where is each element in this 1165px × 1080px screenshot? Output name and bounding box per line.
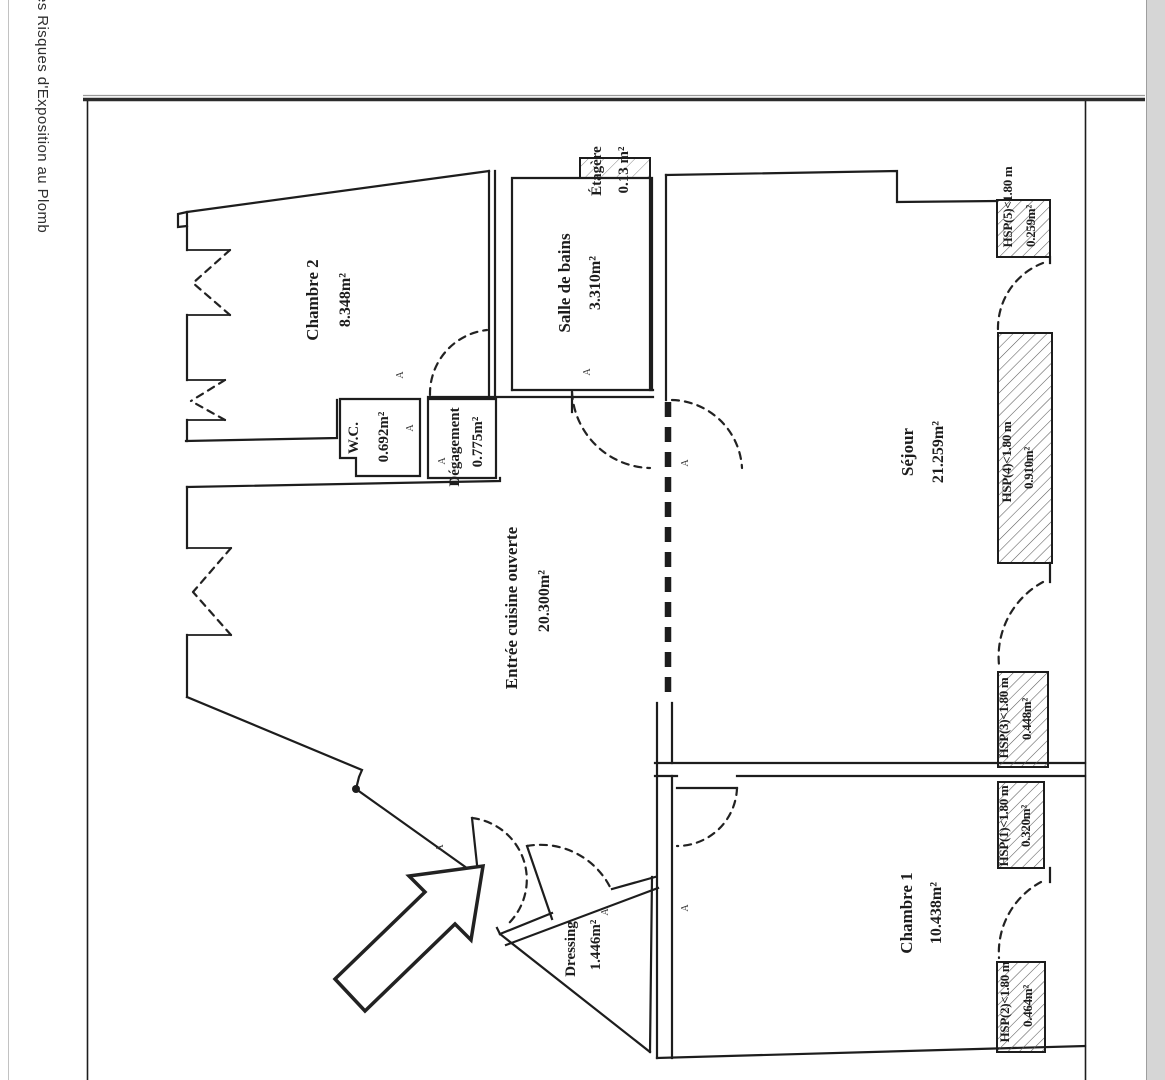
- door-arc-chambre1: [677, 788, 737, 846]
- label-hsp2: HSP(2)<1.80 m: [997, 961, 1012, 1042]
- label-wc-area: 0.692m²: [376, 411, 392, 462]
- a-marker: A: [680, 904, 691, 912]
- label-chambre2-name: Chambre 2: [303, 259, 322, 340]
- a-marker: A: [405, 424, 416, 432]
- door-leaf-dressing: [527, 846, 552, 919]
- label-hsp2-area: 0.464m²: [1020, 985, 1035, 1027]
- label-etagere-area: 0.13 m²: [616, 146, 632, 193]
- label-chambre1-area: 10.438m²: [928, 882, 945, 944]
- label-degagement-area: 0.775m²: [470, 416, 486, 467]
- label-hsp3: HSP(3)<1.80 m: [996, 677, 1011, 758]
- label-sdb-name: Salle de bains: [555, 233, 574, 333]
- survey-markers: A A A A A A A A: [395, 368, 691, 916]
- window-ticks: [187, 250, 231, 635]
- document-page: es Risques d'Exposition au Plomb: [0, 0, 1165, 1080]
- window-arc-ch2-2: [191, 380, 225, 420]
- label-degagement-name: Dégagement: [447, 407, 463, 486]
- label-hsp4: HSP(4)<1.80 m: [999, 421, 1014, 502]
- window-arc-chambre1: [999, 882, 1041, 958]
- floor-plan: Chambre 2 8.348m² W.C. 0.692m² Dégagemen…: [0, 0, 1165, 1080]
- door-arc-sdb: [572, 392, 650, 468]
- label-hsp1: HSP(1)<1.80 m: [996, 785, 1011, 866]
- wall-chambre2-top: [178, 171, 489, 227]
- label-sejour-name: Séjour: [898, 427, 917, 476]
- a-marker: A: [437, 457, 448, 465]
- door-arc-balcony: [999, 582, 1043, 665]
- door-arc-sejour: [672, 400, 742, 468]
- wall-salle-de-bains: [512, 178, 652, 390]
- a-marker: A: [680, 459, 691, 467]
- window-arc-entree: [193, 548, 231, 635]
- wall-chambre2-right: [489, 171, 495, 398]
- label-dressing-area: 1.446m²: [588, 919, 604, 970]
- entrance-arrow: [335, 866, 483, 1011]
- room-labels: Chambre 2 8.348m² W.C. 0.692m² Dégagemen…: [303, 146, 947, 977]
- door-swings: [191, 250, 1043, 958]
- plan-frame: [83, 96, 1145, 1080]
- a-marker: A: [600, 908, 611, 916]
- label-sejour-area: 21.259m²: [930, 421, 947, 483]
- hsp-labels: HSP(5)<1.80 m 0.259m² HSP(4)<1.80 m 0.91…: [996, 166, 1038, 1042]
- label-sdb-area: 3.310m²: [587, 256, 604, 310]
- label-chambre2-area: 8.348m²: [337, 273, 354, 327]
- window-arc-ch2-1: [193, 250, 230, 315]
- a-marker: A: [395, 371, 406, 379]
- wall-sejour-top: [666, 171, 997, 202]
- a-marker: A: [435, 844, 446, 852]
- door-arc-hsp5: [998, 263, 1043, 331]
- label-entree-area: 20.300m²: [536, 570, 553, 632]
- label-hsp3-area: 0.448m²: [1019, 698, 1034, 740]
- wall-chambre1-left: [657, 703, 672, 1058]
- label-hsp1-area: 0.320m²: [1018, 805, 1033, 847]
- label-hsp5: HSP(5)<1.80 m: [1000, 166, 1015, 247]
- label-wc-name: W.C.: [346, 422, 362, 454]
- wall-hinge-dot: [352, 785, 360, 793]
- a-marker: A: [582, 368, 593, 376]
- label-hsp4-area: 0.910m²: [1021, 447, 1036, 489]
- label-dressing-name: Dressing: [563, 921, 579, 977]
- wall-dressing-top: [500, 877, 658, 945]
- label-chambre1-name: Chambre 1: [897, 872, 916, 953]
- label-hsp5-area: 0.259m²: [1023, 205, 1038, 247]
- label-etagere-name: Étagère: [588, 146, 605, 196]
- label-entree-name: Entrée cuisine ouverte: [502, 526, 521, 689]
- door-arc-chambre2: [430, 330, 487, 395]
